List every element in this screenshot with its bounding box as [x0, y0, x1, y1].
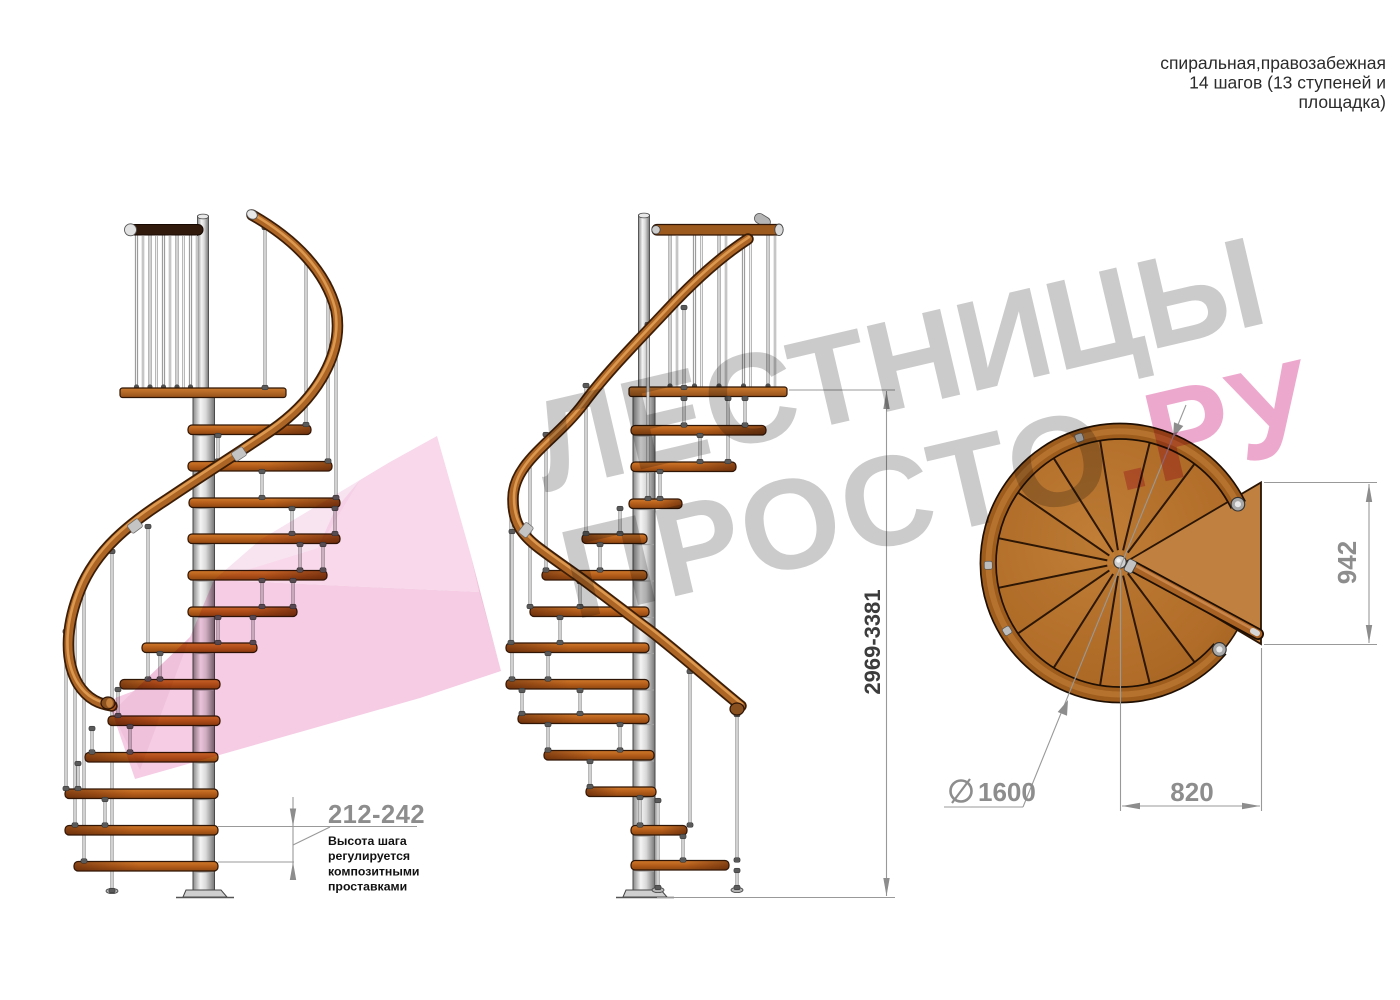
svg-text:Высота шагарегулируетсякомпози: Высота шагарегулируетсякомпозитнымипрост… — [328, 834, 420, 894]
svg-text:2969-3381: 2969-3381 — [860, 589, 885, 694]
svg-text:спиральная,правозабежная14 шаг: спиральная,правозабежная14 шагов (13 сту… — [1160, 53, 1386, 112]
svg-text:1600: 1600 — [978, 777, 1036, 807]
svg-text:942: 942 — [1332, 541, 1362, 584]
svg-text:820: 820 — [1170, 777, 1213, 807]
svg-text:212-242: 212-242 — [328, 801, 425, 829]
